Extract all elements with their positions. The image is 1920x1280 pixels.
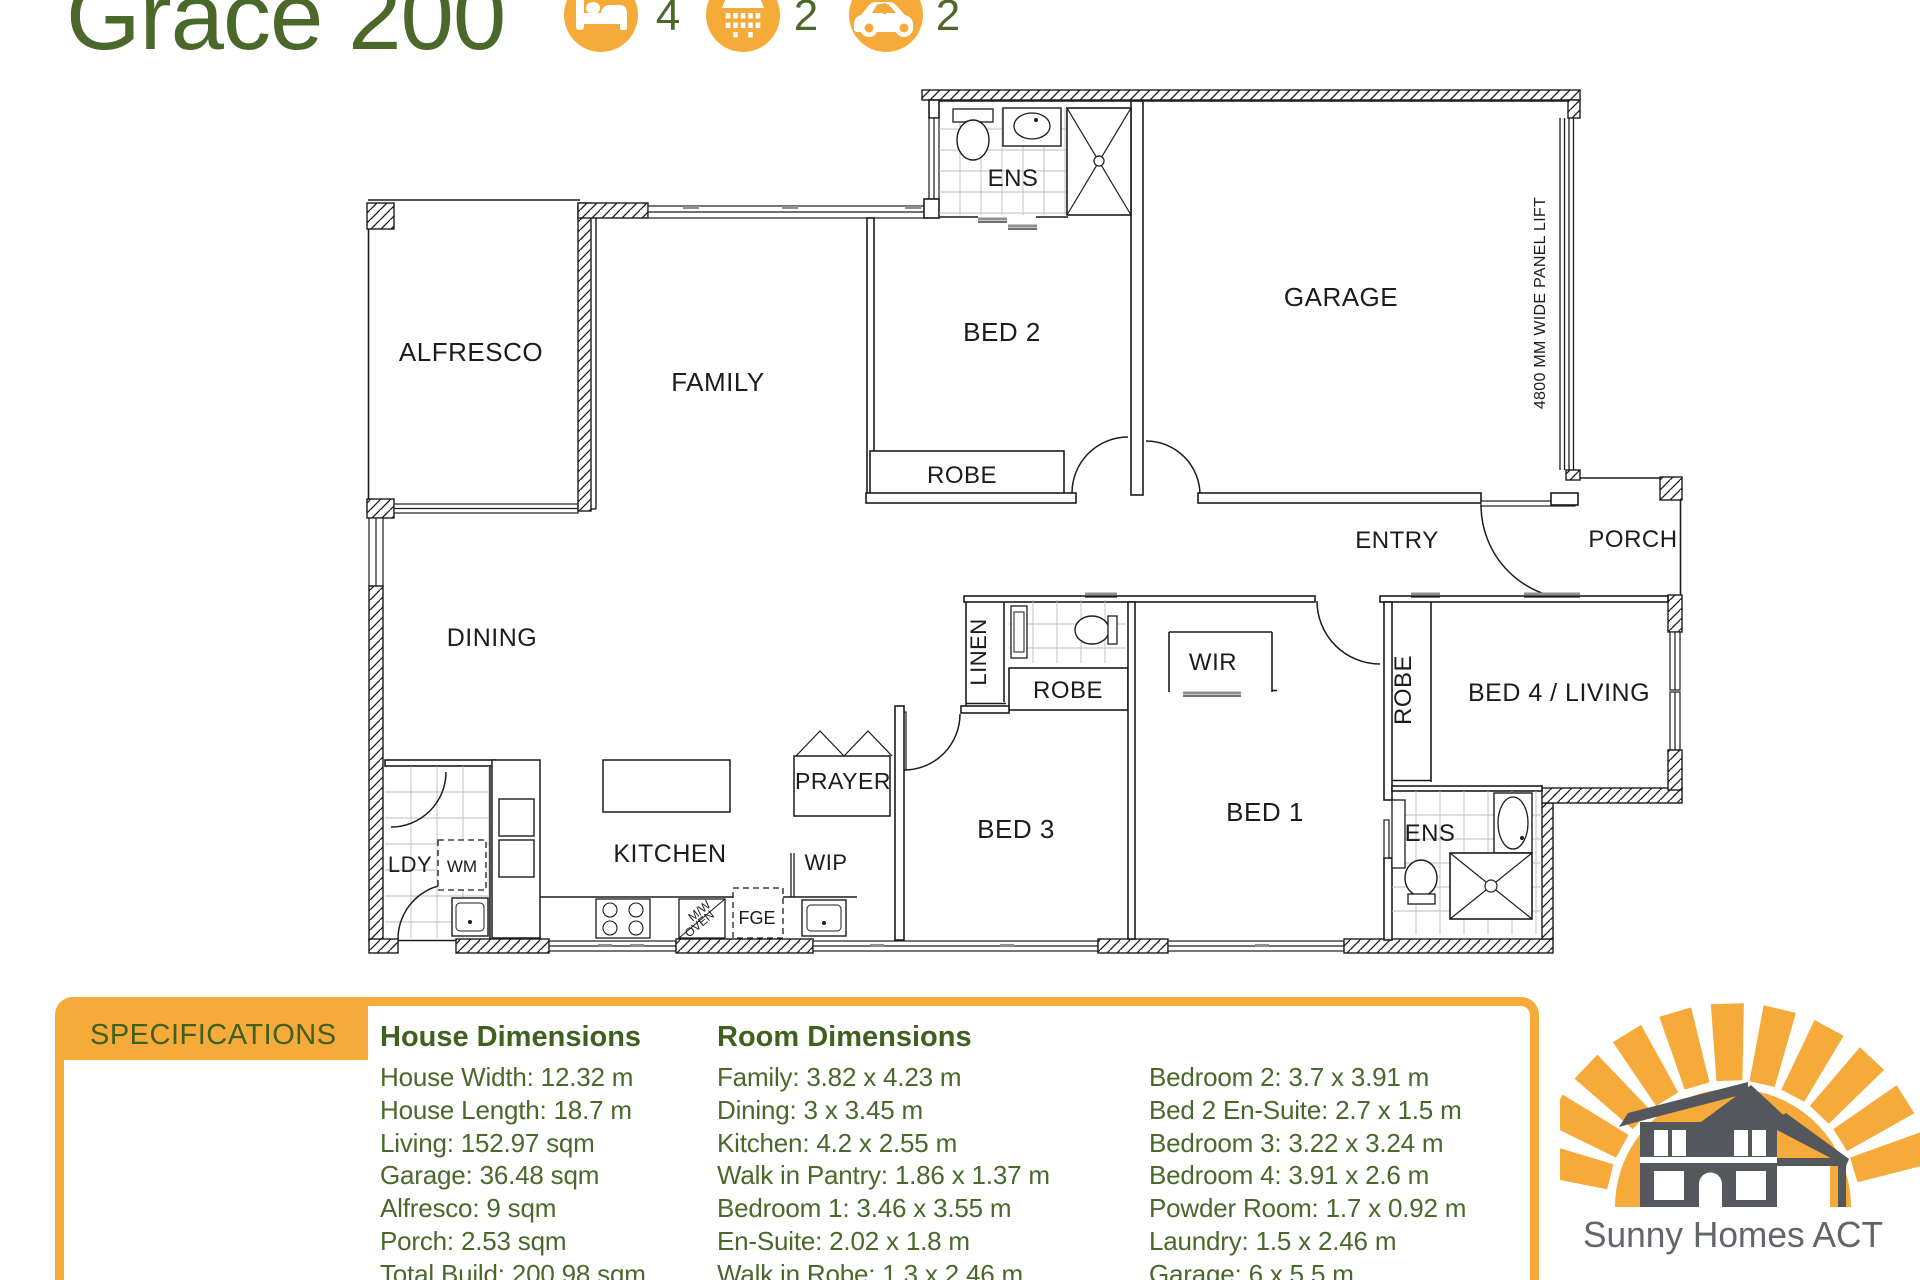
svg-text:PRAYER: PRAYER bbox=[795, 768, 891, 794]
svg-text:DINING: DINING bbox=[447, 624, 538, 652]
svg-text:Sunny Homes ACT: Sunny Homes ACT bbox=[1583, 1214, 1883, 1255]
svg-text:WIR: WIR bbox=[1189, 649, 1237, 676]
svg-text:4800 MM WIDE PANEL LIFT: 4800 MM WIDE PANEL LIFT bbox=[1532, 197, 1549, 409]
svg-text:FAMILY: FAMILY bbox=[671, 367, 765, 397]
svg-text:PORCH: PORCH bbox=[1588, 526, 1677, 553]
svg-text:BED 2: BED 2 bbox=[963, 317, 1041, 347]
svg-text:WIP: WIP bbox=[804, 850, 847, 875]
svg-text:KITCHEN: KITCHEN bbox=[613, 840, 726, 868]
svg-text:ROBE: ROBE bbox=[1390, 655, 1417, 725]
svg-text:ROBE: ROBE bbox=[927, 462, 997, 489]
svg-text:LINEN: LINEN bbox=[966, 618, 991, 685]
svg-text:WM: WM bbox=[447, 857, 477, 876]
svg-text:ENTRY: ENTRY bbox=[1355, 527, 1438, 554]
svg-text:ENS: ENS bbox=[1405, 820, 1456, 847]
svg-text:BED 4 / LIVING: BED 4 / LIVING bbox=[1468, 679, 1650, 707]
svg-text:BED 3: BED 3 bbox=[977, 814, 1055, 844]
svg-text:ENS: ENS bbox=[988, 165, 1039, 192]
svg-text:LDY: LDY bbox=[388, 852, 432, 877]
svg-text:BED 1: BED 1 bbox=[1226, 797, 1304, 827]
svg-text:ALFRESCO: ALFRESCO bbox=[399, 337, 543, 367]
svg-text:ROBE: ROBE bbox=[1033, 677, 1103, 704]
svg-text:GARAGE: GARAGE bbox=[1284, 282, 1398, 312]
svg-text:FGE: FGE bbox=[738, 908, 775, 928]
